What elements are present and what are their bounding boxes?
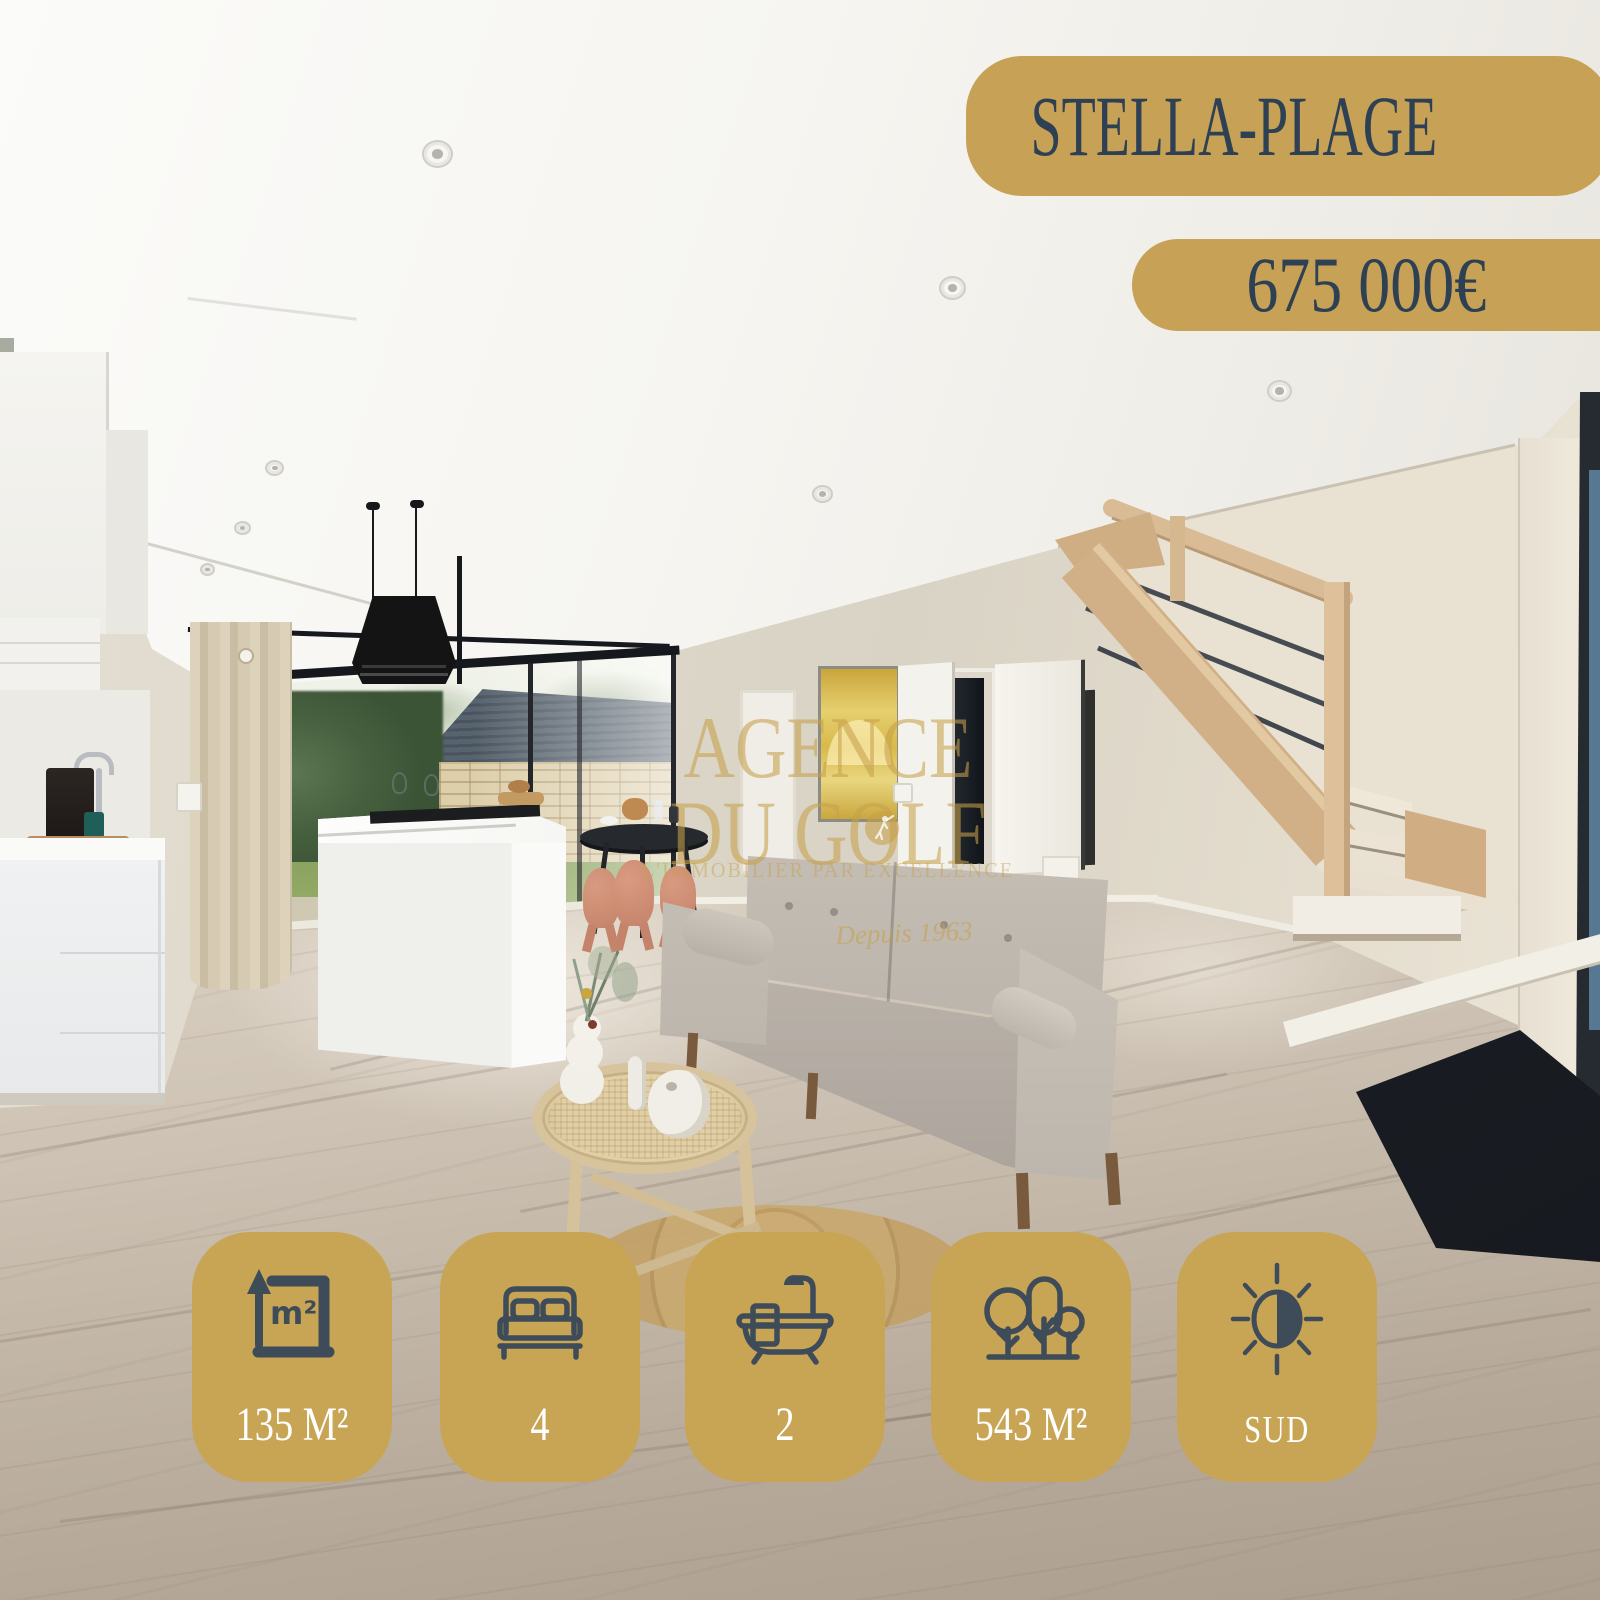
area-m2-icon: m² [232,1254,352,1384]
cutting-board [498,792,544,805]
pastries [622,798,648,820]
spotlight-icon [265,460,284,476]
small-vase [628,1056,646,1110]
trees-icon [971,1254,1091,1384]
spotlight-icon [422,140,453,168]
spotlight-icon [200,563,215,576]
canister [84,812,104,838]
countertop [0,838,165,862]
bread [508,780,530,793]
price-badge-label: 675 000€ [1246,240,1486,330]
spotlight-icon [812,485,833,503]
feature-value: 543 M² [951,1397,1111,1452]
listing-image: AGENCE DU GOLF L'IMMOBILIER PAR EXCELLEN… [0,0,1600,1600]
location-badge-label: STELLA-PLAGE [1031,76,1438,176]
feature-value: SUD [1197,1408,1357,1452]
location-badge: STELLA-PLAGE [966,56,1600,196]
round-vase [648,1070,710,1138]
corner-pillar [1518,438,1582,1110]
feature-tile-bathrooms: 2 [685,1232,885,1482]
wall-cabinet [0,618,100,694]
feature-tile-living-area: m² 135 M² [192,1232,392,1482]
feature-value: 135 M² [212,1397,372,1452]
wall-socket [176,782,202,812]
golfer-icon [864,810,900,846]
base-cabinet [0,860,165,1105]
price-badge: 675 000€ [1132,239,1600,331]
billy-button-flower [581,988,592,999]
watermark-since: Depuis 1963 [835,916,973,952]
bed-icon [480,1254,600,1384]
curtain [190,622,292,990]
curtain-grommet [238,648,254,664]
sun-half-icon [1217,1254,1337,1384]
rail-support-rod [457,556,462,684]
wine-glass-icon [392,772,407,794]
spotlight-icon [1267,380,1292,402]
feature-tile-land-area: 543 M² [931,1232,1131,1482]
cabinet-side-panel [106,430,148,634]
tall-cabinet [0,352,109,634]
feature-tile-orientation: SUD [1177,1232,1377,1482]
glass [654,800,663,820]
kitchen-island [318,806,566,1068]
cup [600,816,618,825]
spotlight-icon [234,521,251,535]
watermark-tagline: L'IMMOBILIER PAR EXCELLENCE [642,858,1014,883]
spotlight-icon [939,276,966,300]
feature-value: 4 [460,1397,620,1452]
sofa [660,850,1185,1240]
bathtub-icon [725,1254,845,1384]
feature-value: 2 [705,1397,865,1452]
wine-glass-icon [424,774,439,796]
feature-tile-bedrooms: 4 [440,1232,640,1482]
